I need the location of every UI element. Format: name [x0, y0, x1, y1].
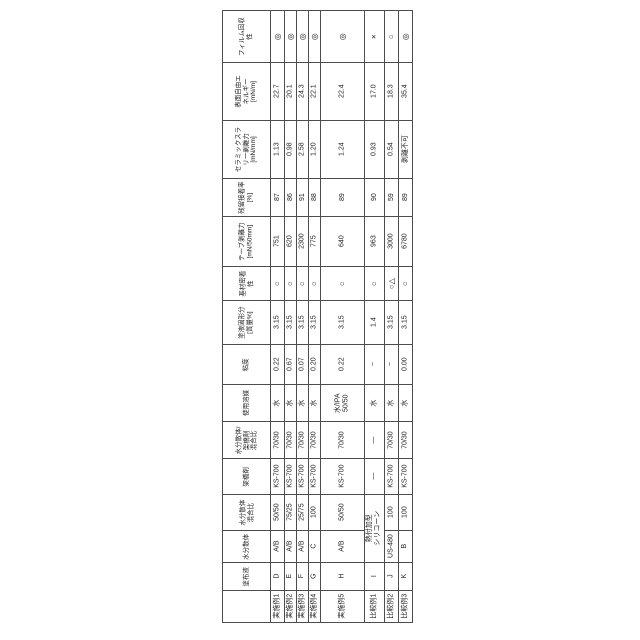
data-cell-dispersion-mix-ratio-col1-text: 50/50	[273, 504, 281, 522]
data-cell-film-recovery-col7-text: ○	[387, 34, 396, 39]
data-cell-tape-peel-force-col8: 6780	[399, 217, 413, 267]
data-cell-viscosity-col6: −	[365, 345, 385, 385]
data-cell-film-recovery-col8: ◎	[399, 11, 413, 63]
data-cell-dispersion-crosslinker-ratio-col5: 70/30	[321, 422, 365, 459]
data-cell-tape-peel-force-col4-text: 775	[310, 236, 318, 248]
data-cell-dispersion-mix-ratio-col5-text: 50/50	[338, 504, 346, 522]
data-cell-dispersion-crosslinker-ratio-col1: 70/30	[271, 422, 285, 459]
data-cell-substrate-adhesion-col5-text: ○	[338, 281, 347, 286]
data-cell-solvent-used-col1-text: 水	[273, 400, 281, 407]
data-cell-solvent-used-col4: 水	[309, 385, 321, 422]
data-cell-viscosity-col5-text: 0.22	[338, 358, 346, 372]
header-cell-coating-solid-content-text: 塗液固形分 [質量%]	[239, 306, 254, 339]
data-cell-solvent-used-col8-text: 水	[401, 400, 409, 407]
data-cell-coating-solid-content-col2-text: 3.15	[286, 316, 294, 330]
data-cell-solvent-used-col2-text: 水	[286, 400, 294, 407]
data-cell-tape-peel-force-col5-text: 640	[338, 236, 346, 248]
data-cell-crosslinker-col4: KS-700	[309, 459, 321, 495]
data-cell-dispersion-crosslinker-ratio-col1-text: 70/30	[273, 431, 281, 449]
data-cell-water-dispersion-col3-text: A/B	[298, 541, 306, 552]
data-cell-sample-labels-col2: 実施例2	[285, 591, 297, 623]
header-cell-surface-free-energy: 表面自由エ ネルギー [mN/m]	[223, 63, 271, 121]
data-cell-substrate-adhesion-col8: ○	[399, 267, 413, 301]
data-cell-surface-free-energy-col7: 18.3	[385, 63, 399, 121]
data-cell-ceramic-slurry-peel-force-col4: 1.20	[309, 121, 321, 179]
data-cell-surface-free-energy-col2-text: 20.1	[286, 85, 294, 99]
data-cell-coating-solid-content-col3: 3.15	[297, 301, 309, 345]
data-cell-crosslinker-col1-text: KS-700	[273, 465, 281, 488]
data-cell-film-recovery-col6: ×	[365, 11, 385, 63]
data-cell-coating-solid-content-col3-text: 3.15	[298, 316, 306, 330]
data-cell-tape-peel-force-col1-text: 751	[273, 236, 281, 248]
data-cell-film-recovery-col4-text: ◎	[310, 33, 319, 40]
data-cell-crosslinker-col6: —	[365, 459, 385, 495]
data-cell-coating-liquid-col3-text: F	[298, 574, 306, 578]
data-cell-coating-solid-content-col8-text: 3.15	[401, 316, 409, 330]
data-cell-dispersion-mix-ratio-col8: 100	[399, 495, 413, 531]
data-cell-coating-liquid-col1-text: D	[273, 574, 281, 579]
data-cell-water-dispersion-col8-text: B	[401, 544, 409, 549]
header-cell-solvent-used: 使用溶媒	[223, 385, 271, 422]
data-cell-residual-adhesion-rate-col7-text: 59	[387, 194, 395, 202]
data-cell-dispersion-mix-ratio-col5: 50/50	[321, 495, 365, 531]
data-cell-crosslinker-col5-text: KS-700	[338, 465, 346, 488]
data-cell-dispersion-mix-ratio-col2: 75/25	[285, 495, 297, 531]
data-cell-substrate-adhesion-col1: ○	[271, 267, 285, 301]
data-cell-crosslinker-col1: KS-700	[271, 459, 285, 495]
data-cell-sample-labels-col4-text: 実施例4	[310, 594, 318, 619]
data-cell-viscosity-col2: 0.67	[285, 345, 297, 385]
data-cell-crosslinker-col5: KS-700	[321, 459, 365, 495]
data-cell-dispersion-crosslinker-ratio-col7-text: 70/30	[387, 431, 395, 449]
data-cell-residual-adhesion-rate-col5: 89	[321, 179, 365, 217]
data-cell-solvent-used-col2: 水	[285, 385, 297, 422]
data-cell-dispersion-crosslinker-ratio-col8-text: 70/30	[401, 431, 409, 449]
data-cell-surface-free-energy-col8: 35.4	[399, 63, 413, 121]
data-cell-solvent-used-col3-text: 水	[298, 400, 306, 407]
data-cell-solvent-used-col6: 水	[365, 385, 385, 422]
data-cell-coating-liquid-col8: K	[399, 563, 413, 591]
data-cell-coating-liquid-col2: E	[285, 563, 297, 591]
data-cell-ceramic-slurry-peel-force-col6-text: 0.93	[370, 143, 378, 157]
data-cell-viscosity-col3-text: 0.07	[298, 358, 306, 372]
data-cell-dispersion-mix-ratio-col4-text: 100	[310, 507, 318, 519]
data-cell-sample-labels-col1: 実施例1	[271, 591, 285, 623]
data-cell-dispersion-mix-ratio-col2-text: 75/25	[286, 504, 294, 522]
data-cell-dispersion-mix-ratio-col7: 100	[385, 495, 399, 531]
data-cell-surface-free-energy-col5-text: 22.4	[338, 85, 346, 99]
data-cell-residual-adhesion-rate-col2-text: 86	[286, 194, 294, 202]
data-cell-film-recovery-col3-text: ◎	[298, 33, 307, 40]
data-cell-surface-free-energy-col6: 17.0	[365, 63, 385, 121]
header-cell-tape-peel-force: テープ剥離力 [mN/50mm]	[223, 217, 271, 267]
header-cell-residual-adhesion-rate-text: 残留接着率 [%]	[239, 181, 254, 214]
data-cell-solvent-used-col5: 水/IPA 50/50	[321, 385, 365, 422]
data-cell-residual-adhesion-rate-col8: 89	[399, 179, 413, 217]
data-cell-residual-adhesion-rate-col5-text: 89	[338, 194, 346, 202]
data-cell-ceramic-slurry-peel-force-col6: 0.93	[365, 121, 385, 179]
header-cell-film-recovery-text: フィルム回収 性	[239, 17, 254, 56]
scanned-document-page: フィルム回収 性◎◎◎◎◎×○◎表面自由エ ネルギー [mN/m]22.720.…	[0, 0, 640, 640]
data-cell-water-dispersion-col2-text: A/B	[286, 541, 294, 552]
data-cell-film-recovery-col2: ◎	[285, 11, 297, 63]
data-cell-ceramic-slurry-peel-force-col1-text: 1.13	[273, 143, 281, 157]
data-cell-coating-solid-content-col6: 1.4	[365, 301, 385, 345]
data-cell-water-dispersion-col1-text: A/B	[273, 541, 281, 552]
data-cell-residual-adhesion-rate-col3-text: 91	[298, 194, 306, 202]
data-cell-sample-labels-col3: 実施例3	[297, 591, 309, 623]
data-cell-film-recovery-col3: ◎	[297, 11, 309, 63]
data-cell-sample-labels-col3-text: 実施例3	[298, 594, 306, 619]
data-cell-surface-free-energy-col3-text: 24.3	[298, 85, 306, 99]
data-cell-residual-adhesion-rate-col6-text: 90	[370, 194, 378, 202]
data-cell-dispersion-crosslinker-ratio-col4: 70/30	[309, 422, 321, 459]
data-cell-coating-liquid-col5-text: H	[338, 574, 346, 579]
data-cell-coating-liquid-col7-text: J	[387, 575, 395, 579]
data-cell-ceramic-slurry-peel-force-col4-text: 1.20	[310, 143, 318, 157]
data-cell-substrate-adhesion-col3-text: ○	[298, 281, 307, 286]
data-cell-tape-peel-force-col4: 775	[309, 217, 321, 267]
data-cell-sample-labels-col8-text: 比較例3	[401, 594, 409, 619]
data-cell-coating-solid-content-col1: 3.15	[271, 301, 285, 345]
data-cell-surface-free-energy-col4-text: 22.1	[310, 85, 318, 99]
merged-cell-thermal-addition-silicone: 熱付加型 シリコーン	[365, 495, 385, 563]
data-cell-substrate-adhesion-col4-text: ○	[310, 281, 319, 286]
data-cell-residual-adhesion-rate-col4-text: 88	[310, 194, 318, 202]
data-cell-substrate-adhesion-col6-text: ○	[370, 281, 379, 286]
data-cell-dispersion-mix-ratio-col3: 25/75	[297, 495, 309, 531]
header-cell-surface-free-energy-text: 表面自由エ ネルギー [mN/m]	[235, 75, 258, 108]
data-cell-coating-solid-content-col2: 3.15	[285, 301, 297, 345]
data-cell-coating-solid-content-col4: 3.15	[309, 301, 321, 345]
data-cell-dispersion-crosslinker-ratio-col7: 70/30	[385, 422, 399, 459]
data-cell-tape-peel-force-col3-text: 2300	[298, 234, 306, 250]
header-cell-residual-adhesion-rate: 残留接着率 [%]	[223, 179, 271, 217]
data-cell-viscosity-col3: 0.07	[297, 345, 309, 385]
data-cell-water-dispersion-col7-text: US-480	[387, 535, 395, 559]
data-cell-viscosity-col7-text: −	[387, 362, 395, 366]
data-cell-viscosity-col4-text: 0.20	[310, 358, 318, 372]
data-cell-surface-free-energy-col4: 22.1	[309, 63, 321, 121]
data-cell-surface-free-energy-col3: 24.3	[297, 63, 309, 121]
data-cell-residual-adhesion-rate-col8-text: 89	[401, 194, 409, 202]
data-cell-dispersion-crosslinker-ratio-col2-text: 70/30	[286, 431, 294, 449]
data-cell-water-dispersion-col1: A/B	[271, 531, 285, 563]
data-cell-coating-liquid-col7: J	[385, 563, 399, 591]
data-cell-coating-solid-content-col6-text: 1.4	[370, 318, 378, 328]
data-cell-surface-free-energy-col1-text: 22.7	[273, 85, 281, 99]
data-cell-solvent-used-col7: 水	[385, 385, 399, 422]
data-cell-film-recovery-col7: ○	[385, 11, 399, 63]
data-cell-residual-adhesion-rate-col6: 90	[365, 179, 385, 217]
data-cell-crosslinker-col7: KS-700	[385, 459, 399, 495]
data-cell-crosslinker-col3-text: KS-700	[298, 465, 306, 488]
data-cell-sample-labels-col8: 比較例3	[399, 591, 413, 623]
data-cell-coating-liquid-col1: D	[271, 563, 285, 591]
data-cell-coating-liquid-col4: G	[309, 563, 321, 591]
data-cell-residual-adhesion-rate-col4: 88	[309, 179, 321, 217]
data-cell-film-recovery-col2-text: ◎	[286, 33, 295, 40]
header-cell-film-recovery: フィルム回収 性	[223, 11, 271, 63]
data-cell-coating-solid-content-col8: 3.15	[399, 301, 413, 345]
data-cell-water-dispersion-col5: A/B	[321, 531, 365, 563]
data-cell-crosslinker-col7-text: KS-700	[387, 465, 395, 488]
header-cell-dispersion-crosslinker-ratio-text: 水分散体/ 架橋剤 混合比	[235, 426, 258, 454]
data-cell-water-dispersion-col8: B	[399, 531, 413, 563]
data-cell-sample-labels-col5: 実施例5	[321, 591, 365, 623]
data-cell-solvent-used-col3: 水	[297, 385, 309, 422]
data-cell-surface-free-energy-col1: 22.7	[271, 63, 285, 121]
data-cell-tape-peel-force-col3: 2300	[297, 217, 309, 267]
data-cell-sample-labels-col7-text: 比較例2	[387, 594, 395, 619]
data-cell-coating-solid-content-col1-text: 3.15	[273, 316, 281, 330]
data-cell-sample-labels-col6-text: 比較例1	[370, 594, 378, 619]
data-cell-coating-solid-content-col7-text: 3.15	[387, 316, 395, 330]
data-cell-film-recovery-col5-text: ◎	[338, 33, 347, 40]
data-cell-substrate-adhesion-col2-text: ○	[286, 281, 295, 286]
data-cell-crosslinker-col2: KS-700	[285, 459, 297, 495]
data-cell-ceramic-slurry-peel-force-col7: 0.54	[385, 121, 399, 179]
data-cell-viscosity-col4: 0.20	[309, 345, 321, 385]
header-cell-dispersion-crosslinker-ratio: 水分散体/ 架橋剤 混合比	[223, 422, 271, 459]
data-cell-film-recovery-col1: ◎	[271, 11, 285, 63]
data-cell-dispersion-crosslinker-ratio-col5-text: 70/30	[338, 431, 346, 449]
header-cell-crosslinker: 架橋剤	[223, 459, 271, 495]
data-cell-residual-adhesion-rate-col7: 59	[385, 179, 399, 217]
data-cell-dispersion-mix-ratio-col7-text: 100	[387, 507, 395, 519]
data-cell-viscosity-col2-text: 0.67	[286, 358, 294, 372]
header-cell-coating-solid-content: 塗液固形分 [質量%]	[223, 301, 271, 345]
data-cell-coating-liquid-col5: H	[321, 563, 365, 591]
data-cell-tape-peel-force-col2: 620	[285, 217, 297, 267]
data-cell-dispersion-crosslinker-ratio-col6-text: —	[370, 437, 378, 444]
header-cell-viscosity: 粘度	[223, 345, 271, 385]
data-cell-crosslinker-col3: KS-700	[297, 459, 309, 495]
header-cell-dispersion-mix-ratio: 水分散体 混合比	[223, 495, 271, 531]
header-cell-tape-peel-force-text: テープ剥離力 [mN/50mm]	[239, 222, 254, 261]
data-cell-surface-free-energy-col8-text: 35.4	[401, 85, 409, 99]
data-cell-ceramic-slurry-peel-force-col8: 剥離不可	[399, 121, 413, 179]
data-cell-water-dispersion-col2: A/B	[285, 531, 297, 563]
header-cell-coating-liquid: 塗布液	[223, 563, 271, 591]
data-cell-surface-free-energy-col7-text: 18.3	[387, 85, 395, 99]
data-cell-viscosity-col5: 0.22	[321, 345, 365, 385]
data-cell-ceramic-slurry-peel-force-col1: 1.13	[271, 121, 285, 179]
data-cell-tape-peel-force-col2-text: 620	[286, 236, 294, 248]
data-cell-substrate-adhesion-col7-text: ○△	[387, 278, 396, 289]
data-cell-viscosity-col6-text: −	[370, 362, 378, 366]
data-cell-dispersion-crosslinker-ratio-col6: —	[365, 422, 385, 459]
data-cell-solvent-used-col1: 水	[271, 385, 285, 422]
data-cell-film-recovery-col8-text: ◎	[401, 33, 410, 40]
data-cell-substrate-adhesion-col3: ○	[297, 267, 309, 301]
data-cell-water-dispersion-col4-text: C	[310, 544, 318, 549]
data-cell-tape-peel-force-col1: 751	[271, 217, 285, 267]
data-cell-ceramic-slurry-peel-force-col5: 1.24	[321, 121, 365, 179]
data-cell-sample-labels-col1-text: 実施例1	[273, 594, 281, 619]
data-cell-tape-peel-force-col7-text: 3000	[387, 234, 395, 250]
header-cell-sample-labels	[223, 591, 271, 623]
data-cell-sample-labels-col6: 比較例1	[365, 591, 385, 623]
data-cell-ceramic-slurry-peel-force-col3-text: 2.58	[298, 143, 306, 157]
data-cell-substrate-adhesion-col1-text: ○	[273, 281, 282, 286]
data-cell-viscosity-col7: −	[385, 345, 399, 385]
data-cell-substrate-adhesion-col4: ○	[309, 267, 321, 301]
data-cell-dispersion-crosslinker-ratio-col3: 70/30	[297, 422, 309, 459]
data-cell-tape-peel-force-col6: 963	[365, 217, 385, 267]
header-cell-solvent-used-text: 使用溶媒	[243, 390, 251, 416]
header-cell-coating-liquid-text: 塗布液	[243, 567, 251, 587]
data-cell-substrate-adhesion-col2: ○	[285, 267, 297, 301]
header-cell-crosslinker-text: 架橋剤	[243, 467, 251, 487]
data-cell-coating-liquid-col8-text: K	[401, 574, 409, 579]
data-cell-film-recovery-col4: ◎	[309, 11, 321, 63]
header-cell-substrate-adhesion-text: 基材密着 性	[239, 271, 254, 297]
data-cell-sample-labels-col2-text: 実施例2	[286, 594, 294, 619]
data-cell-solvent-used-col4-text: 水	[310, 400, 318, 407]
data-cell-dispersion-mix-ratio-col8-text: 100	[401, 507, 409, 519]
data-cell-ceramic-slurry-peel-force-col2: 0.98	[285, 121, 297, 179]
data-cell-tape-peel-force-col6-text: 963	[370, 236, 378, 248]
data-cell-sample-labels-col4: 実施例4	[309, 591, 321, 623]
data-cell-substrate-adhesion-col8-text: ○	[401, 281, 410, 286]
data-cell-coating-solid-content-col5: 3.15	[321, 301, 365, 345]
data-cell-tape-peel-force-col5: 640	[321, 217, 365, 267]
data-cell-ceramic-slurry-peel-force-col3: 2.58	[297, 121, 309, 179]
data-cell-solvent-used-col5-text: 水/IPA 50/50	[334, 393, 351, 413]
data-cell-crosslinker-col8-text: KS-700	[401, 465, 409, 488]
data-cell-solvent-used-col7-text: 水	[387, 400, 395, 407]
data-cell-coating-liquid-col2-text: E	[286, 574, 294, 579]
data-cell-water-dispersion-col5-text: A/B	[338, 541, 346, 552]
rotated-patent-table: フィルム回収 性◎◎◎◎◎×○◎表面自由エ ネルギー [mN/m]22.720.…	[222, 10, 413, 623]
data-cell-dispersion-mix-ratio-col1: 50/50	[271, 495, 285, 531]
data-cell-dispersion-mix-ratio-col3-text: 25/75	[298, 504, 306, 522]
data-cell-substrate-adhesion-col5: ○	[321, 267, 365, 301]
data-cell-water-dispersion-col7: US-480	[385, 531, 399, 563]
data-cell-surface-free-energy-col2: 20.1	[285, 63, 297, 121]
data-cell-substrate-adhesion-col6: ○	[365, 267, 385, 301]
data-cell-viscosity-col8: 0.00	[399, 345, 413, 385]
data-cell-coating-solid-content-col7: 3.15	[385, 301, 399, 345]
data-cell-dispersion-crosslinker-ratio-col2: 70/30	[285, 422, 297, 459]
data-cell-crosslinker-col8: KS-700	[399, 459, 413, 495]
data-cell-viscosity-col1: 0.22	[271, 345, 285, 385]
data-cell-residual-adhesion-rate-col2: 86	[285, 179, 297, 217]
header-cell-ceramic-slurry-peel-force: セラミックスラ リー剥離力 [mN/mm]	[223, 121, 271, 179]
data-cell-residual-adhesion-rate-col1: 87	[271, 179, 285, 217]
data-cell-water-dispersion-col3: A/B	[297, 531, 309, 563]
data-cell-viscosity-col1-text: 0.22	[273, 358, 281, 372]
data-cell-water-dispersion-col4: C	[309, 531, 321, 563]
data-cell-tape-peel-force-col8-text: 6780	[401, 234, 409, 250]
data-cell-dispersion-crosslinker-ratio-col8: 70/30	[399, 422, 413, 459]
data-cell-dispersion-crosslinker-ratio-col3-text: 70/30	[298, 431, 306, 449]
data-cell-film-recovery-col6-text: ×	[370, 34, 379, 39]
data-cell-coating-liquid-col6: I	[365, 563, 385, 591]
data-cell-ceramic-slurry-peel-force-col8-text: 剥離不可	[401, 136, 409, 164]
data-cell-ceramic-slurry-peel-force-col2-text: 0.98	[286, 143, 294, 157]
data-cell-substrate-adhesion-col7: ○△	[385, 267, 399, 301]
header-cell-water-dispersion-text: 水分散体	[243, 534, 251, 560]
data-cell-coating-solid-content-col5-text: 3.15	[338, 316, 346, 330]
data-cell-dispersion-crosslinker-ratio-col4-text: 70/30	[310, 431, 318, 449]
data-cell-surface-free-energy-col5: 22.4	[321, 63, 365, 121]
data-cell-crosslinker-col2-text: KS-700	[286, 465, 294, 488]
data-cell-sample-labels-col5-text: 実施例5	[338, 594, 346, 619]
header-cell-substrate-adhesion: 基材密着 性	[223, 267, 271, 301]
header-cell-ceramic-slurry-peel-force-text: セラミックスラ リー剥離力 [mN/mm]	[235, 127, 258, 172]
data-cell-coating-liquid-col3: F	[297, 563, 309, 591]
data-cell-coating-solid-content-col4-text: 3.15	[310, 316, 318, 330]
data-cell-coating-liquid-col4-text: G	[310, 574, 318, 579]
data-cell-crosslinker-col4-text: KS-700	[310, 465, 318, 488]
data-cell-crosslinker-col6-text: —	[370, 473, 378, 480]
data-cell-coating-liquid-col6-text: I	[370, 576, 378, 578]
merged-cell-thermal-addition-silicone-text: 熱付加型 シリコーン	[366, 511, 383, 546]
data-cell-ceramic-slurry-peel-force-col5-text: 1.24	[338, 143, 346, 157]
header-cell-dispersion-mix-ratio-text: 水分散体 混合比	[239, 500, 254, 526]
data-cell-ceramic-slurry-peel-force-col7-text: 0.54	[387, 143, 395, 157]
data-cell-viscosity-col8-text: 0.00	[401, 358, 409, 372]
data-cell-solvent-used-col8: 水	[399, 385, 413, 422]
data-cell-dispersion-mix-ratio-col4: 100	[309, 495, 321, 531]
data-cell-surface-free-energy-col6-text: 17.0	[370, 85, 378, 99]
data-cell-film-recovery-col1-text: ◎	[273, 33, 282, 40]
header-cell-viscosity-text: 粘度	[243, 358, 251, 371]
data-cell-film-recovery-col5: ◎	[321, 11, 365, 63]
data-cell-sample-labels-col7: 比較例2	[385, 591, 399, 623]
data-cell-tape-peel-force-col7: 3000	[385, 217, 399, 267]
data-cell-solvent-used-col6-text: 水	[370, 400, 378, 407]
data-cell-residual-adhesion-rate-col3: 91	[297, 179, 309, 217]
header-cell-water-dispersion: 水分散体	[223, 531, 271, 563]
data-cell-residual-adhesion-rate-col1-text: 87	[273, 194, 281, 202]
